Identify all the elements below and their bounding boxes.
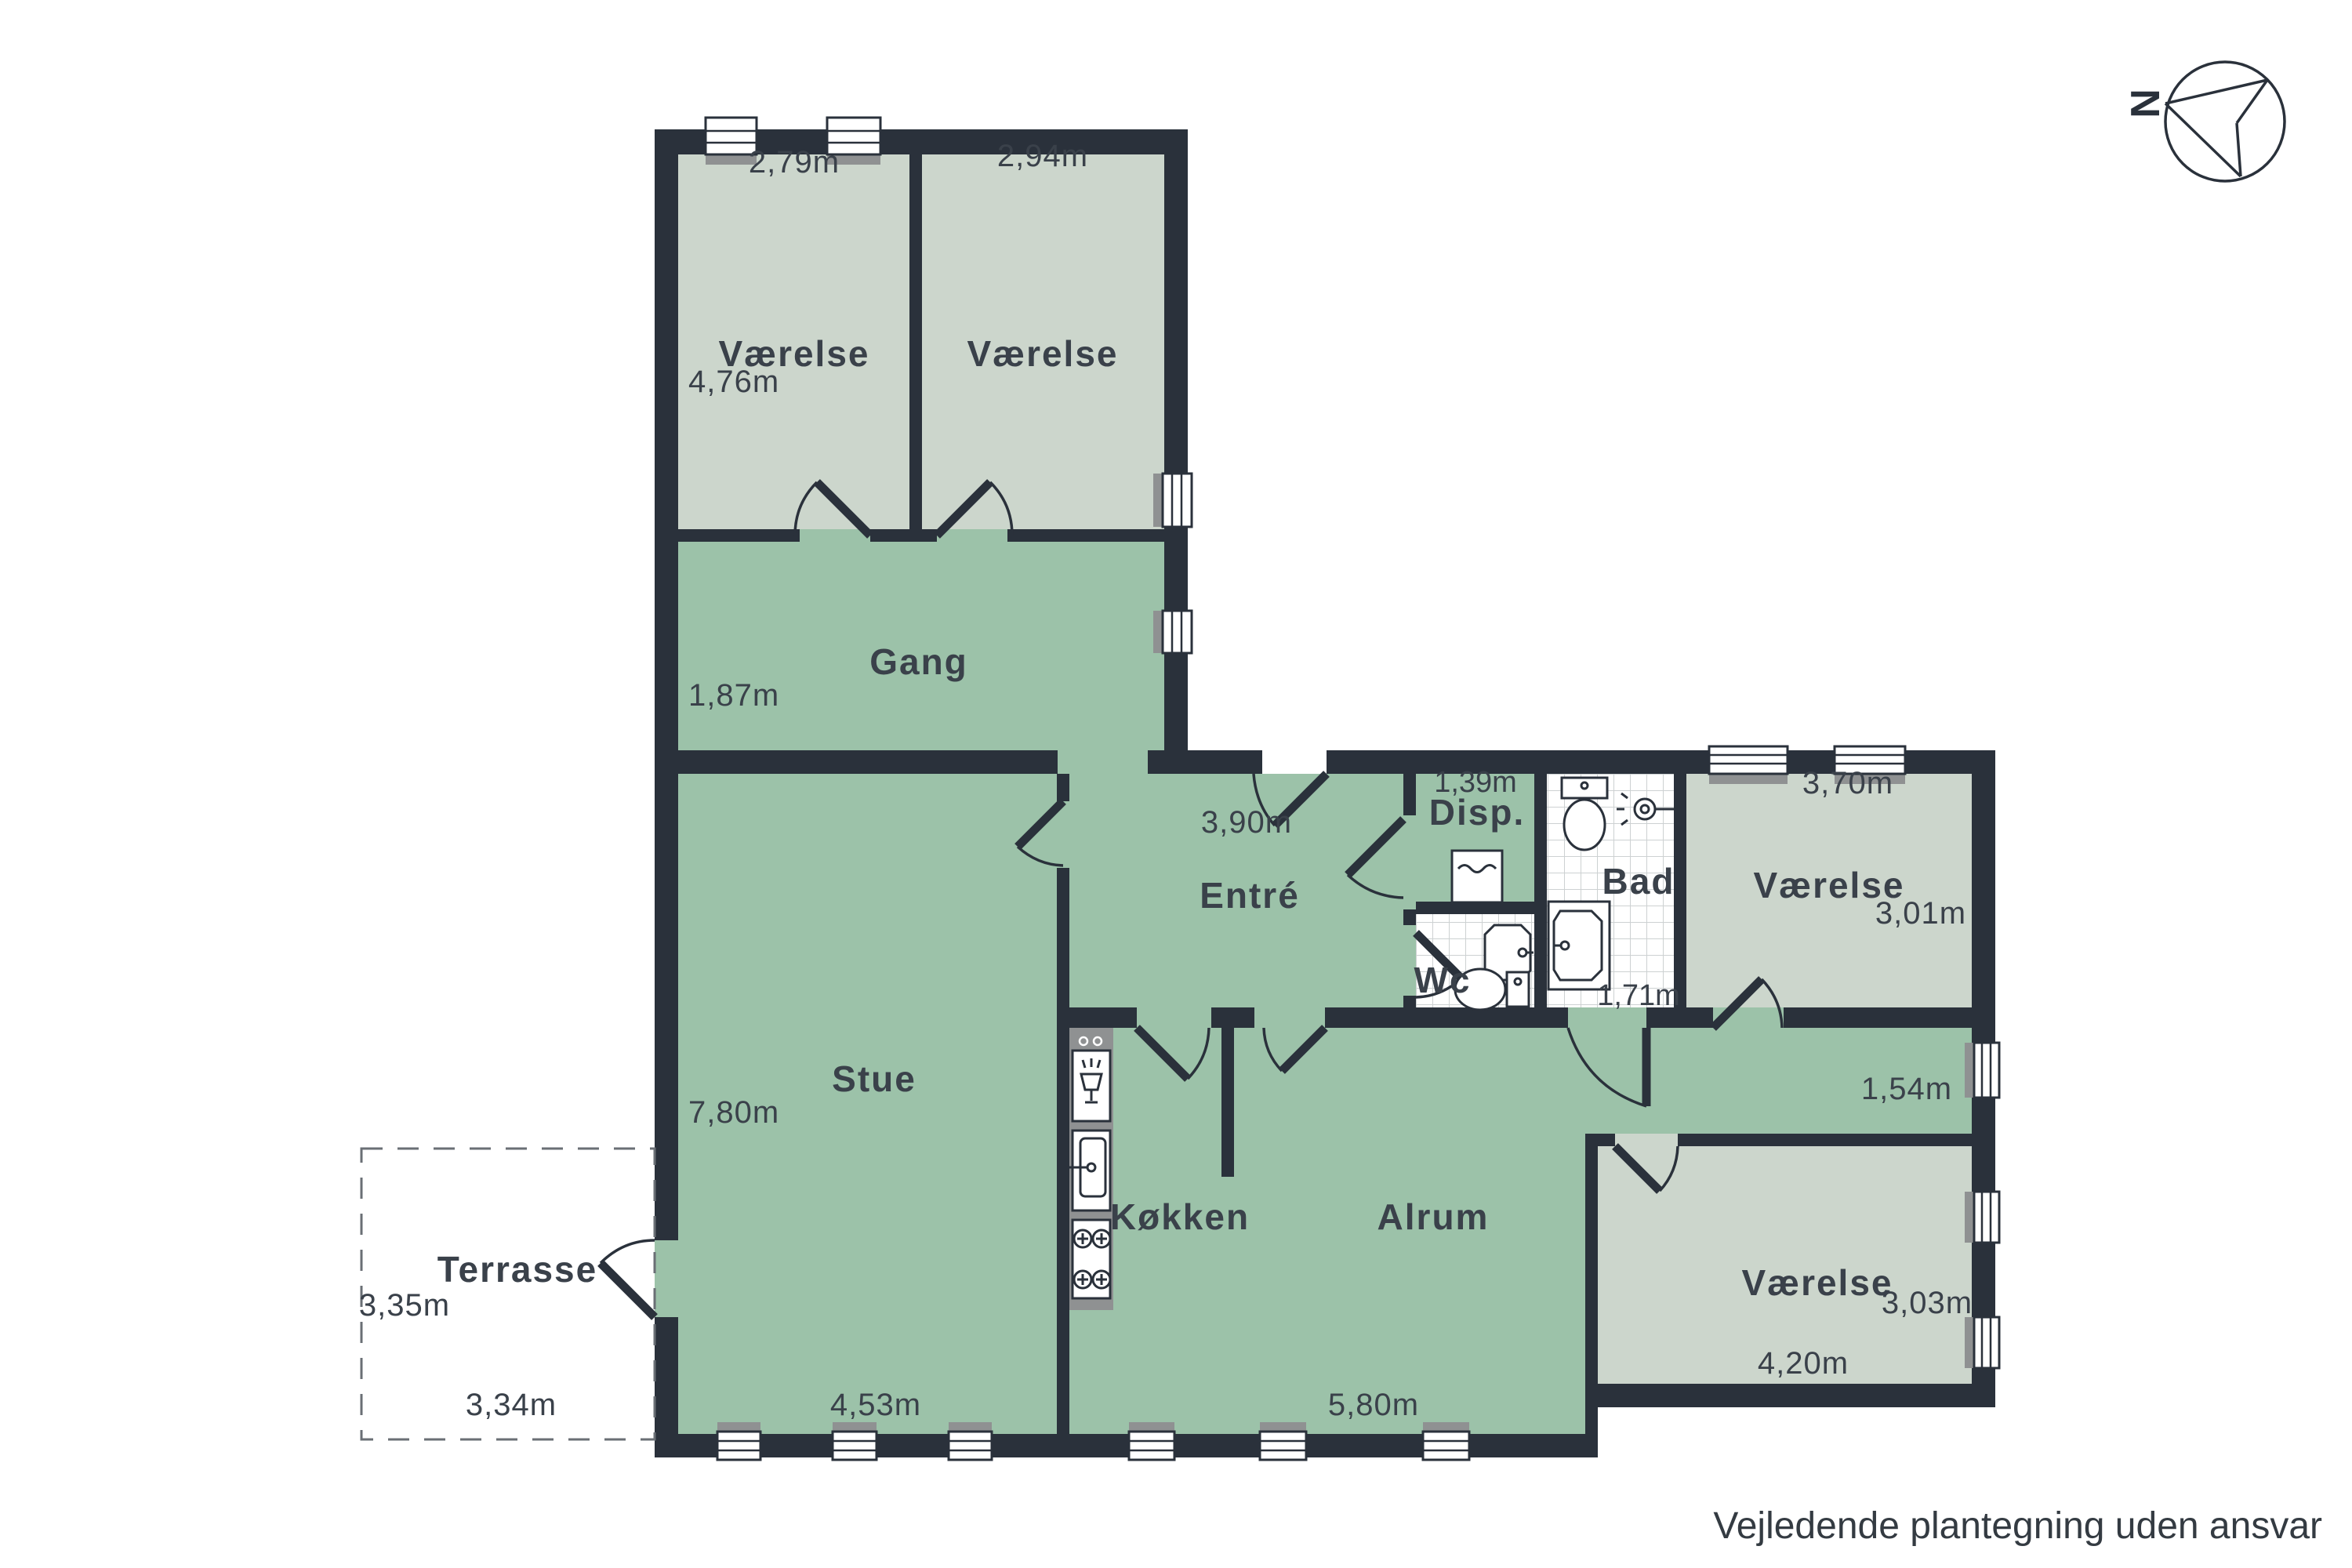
window: [1129, 1422, 1174, 1460]
gang-opening: [1058, 750, 1148, 774]
room-label-alrum: Alrum: [1377, 1196, 1490, 1237]
dim-vaerelse-e-height: 3,01m: [1875, 896, 1966, 931]
door-terrasse: [601, 1240, 655, 1317]
dim-vaerelse-se-height: 3,03m: [1882, 1286, 1973, 1320]
dim-bad-width: 1,71m: [1597, 979, 1680, 1012]
koekken-door-gap: [1137, 1007, 1211, 1028]
compass: N: [2123, 62, 2285, 181]
dim-vaerelse-n-width: 2,94m: [997, 139, 1088, 173]
disclaimer-text: Vejledende plantegning uden ansvar: [1713, 1505, 2322, 1547]
window: [1423, 1422, 1469, 1460]
room-label-vaerelse-se: Værelse: [1741, 1262, 1893, 1303]
room-label-gang: Gang: [869, 641, 968, 682]
vaerelse-se-door-gap: [1615, 1134, 1678, 1146]
room-label-entre: Entré: [1200, 875, 1300, 916]
window: [717, 1422, 760, 1460]
dim-disp-width: 1,39m: [1434, 766, 1517, 799]
dim-stue-width: 4,53m: [830, 1388, 921, 1422]
window: [1260, 1422, 1306, 1460]
stove-icon: [1073, 1220, 1110, 1298]
dim-vaerelse-nw-height: 4,76m: [688, 365, 779, 399]
window: [1965, 1043, 1999, 1098]
dim-entre-width: 3,90m: [1201, 805, 1292, 840]
kitchen-counter: [1069, 1028, 1113, 1310]
alrum-door-gap: [1254, 1007, 1325, 1028]
window: [949, 1422, 992, 1460]
sink-icon: [1069, 1131, 1110, 1210]
dim-alrum-corridor: 1,54m: [1861, 1072, 1952, 1106]
floor-plan: N Værelse 2,79m 4,76m Værelse 2,94m Gang…: [0, 0, 2352, 1568]
window: [1965, 1192, 1999, 1243]
floor-plan-page: N Værelse 2,79m 4,76m Værelse 2,94m Gang…: [0, 0, 2352, 1568]
vanity-sink-icon: [1548, 902, 1610, 989]
room-label-terrasse: Terrasse: [437, 1249, 597, 1290]
room-label-vaerelse-n: Værelse: [967, 333, 1118, 374]
room-label-bad: Bad: [1602, 861, 1675, 902]
dishwasher-icon: [1073, 1051, 1110, 1121]
dim-vaerelse-se-width: 4,20m: [1758, 1346, 1849, 1381]
dim-terrasse-width: 3,34m: [466, 1388, 557, 1422]
window: [1153, 474, 1192, 527]
dim-terrasse-depth: 3,35m: [359, 1288, 450, 1323]
dim-vaerelse-e-width: 3,70m: [1802, 766, 1893, 800]
compass-north-label: N: [2123, 89, 2169, 118]
room-label-wc: Wc: [1414, 960, 1472, 1000]
window: [1965, 1317, 1999, 1368]
window: [1709, 746, 1788, 784]
window: [833, 1422, 877, 1460]
dim-vaerelse-nw-width: 2,79m: [749, 145, 840, 180]
room-label-stue: Stue: [832, 1058, 916, 1099]
dim-gang-height: 1,87m: [688, 678, 779, 713]
terrasse-door-gap: [655, 1240, 678, 1317]
disp-door-gap: [1403, 815, 1416, 909]
dim-alrum-width: 5,80m: [1328, 1388, 1419, 1422]
dim-stue-height: 7,80m: [688, 1095, 779, 1130]
toilet-icon: [1562, 778, 1607, 850]
window: [1153, 611, 1192, 653]
room-label-koekken: Køkken: [1110, 1196, 1250, 1237]
laundry-basket-icon: [1452, 851, 1502, 902]
